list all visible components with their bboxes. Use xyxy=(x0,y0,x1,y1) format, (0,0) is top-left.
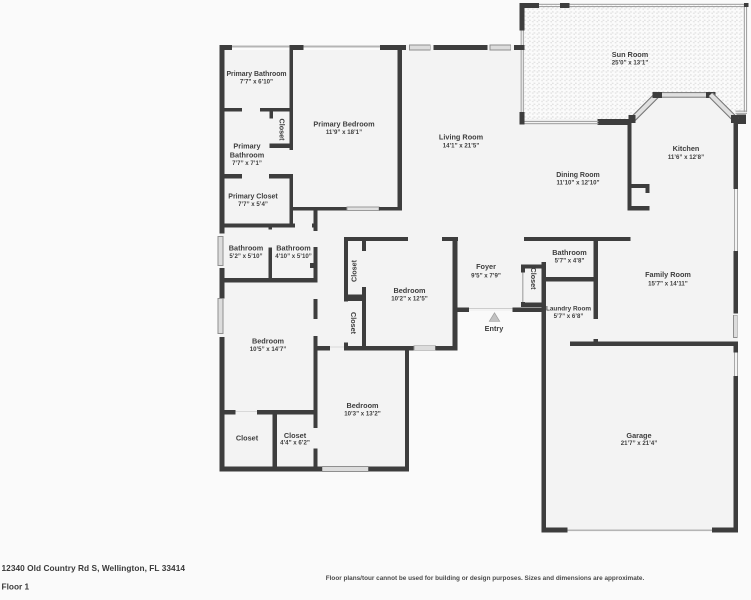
svg-text:9’5” x 7’9”: 9’5” x 7’9” xyxy=(471,273,501,280)
svg-text:Closet: Closet xyxy=(529,268,538,291)
svg-text:11’10” x 12’10”: 11’10” x 12’10” xyxy=(556,179,599,186)
svg-text:Floor plans/tour cannot be use: Floor plans/tour cannot be used for buil… xyxy=(326,575,645,582)
svg-text:21’7” x 21’4”: 21’7” x 21’4” xyxy=(621,440,658,447)
svg-text:Bedroom: Bedroom xyxy=(346,401,379,410)
svg-text:Primary Closet: Primary Closet xyxy=(228,194,278,201)
svg-text:10’3” x 13’2”: 10’3” x 13’2” xyxy=(344,410,381,417)
svg-text:Primary Bathroom: Primary Bathroom xyxy=(226,71,286,78)
svg-text:11’9” x 18’1”: 11’9” x 18’1” xyxy=(326,129,362,136)
svg-text:Bathroom: Bathroom xyxy=(276,244,311,253)
svg-text:10’2” x 12’5”: 10’2” x 12’5” xyxy=(391,295,428,302)
svg-text:5’7” x 4’8”: 5’7” x 4’8” xyxy=(555,257,585,264)
svg-text:Floor 1: Floor 1 xyxy=(2,582,30,592)
svg-text:Closet: Closet xyxy=(349,312,358,335)
svg-text:4’4” x 6’2”: 4’4” x 6’2” xyxy=(280,440,310,447)
svg-text:Primary: Primary xyxy=(233,141,261,150)
svg-text:Closet: Closet xyxy=(236,433,259,442)
svg-text:Primary Bedroom: Primary Bedroom xyxy=(313,120,375,129)
svg-text:7’7” x 5’4”: 7’7” x 5’4” xyxy=(238,201,268,208)
svg-text:10’5” x 14’7”: 10’5” x 14’7” xyxy=(250,346,287,353)
svg-text:Dining Room: Dining Room xyxy=(556,172,600,179)
svg-text:Laundry Room: Laundry Room xyxy=(546,306,591,313)
svg-text:Bathroom: Bathroom xyxy=(229,244,264,253)
svg-text:Sun Room: Sun Room xyxy=(612,50,649,59)
svg-text:Closet: Closet xyxy=(278,119,287,142)
svg-text:5’7” x 6’8”: 5’7” x 6’8” xyxy=(554,313,584,320)
svg-text:Family Room: Family Room xyxy=(645,270,691,279)
svg-text:Kitchen: Kitchen xyxy=(673,144,700,153)
svg-text:5’2” x 5’10”: 5’2” x 5’10” xyxy=(229,253,262,260)
svg-text:Garage: Garage xyxy=(626,431,651,440)
svg-text:Closet: Closet xyxy=(350,259,359,282)
svg-text:25’0” x 13’1”: 25’0” x 13’1” xyxy=(612,59,649,66)
svg-text:4’10” x 5’10”: 4’10” x 5’10” xyxy=(275,253,312,260)
svg-text:12340 Old Country Rd S, Wellin: 12340 Old Country Rd S, Wellington, FL 3… xyxy=(2,563,186,573)
svg-text:11’6” x 12’8”: 11’6” x 12’8” xyxy=(668,154,704,161)
svg-text:14’1” x 21’5”: 14’1” x 21’5” xyxy=(443,143,480,150)
svg-text:Entry: Entry xyxy=(485,324,505,333)
svg-text:Bedroom: Bedroom xyxy=(393,286,426,295)
svg-text:7’7” x 6’10”: 7’7” x 6’10” xyxy=(240,79,273,86)
svg-text:Bathroom: Bathroom xyxy=(552,248,587,257)
svg-text:Living Room: Living Room xyxy=(439,132,484,141)
svg-text:15’7” x 14’11”: 15’7” x 14’11” xyxy=(648,281,688,288)
svg-text:Bathroom: Bathroom xyxy=(230,151,265,160)
svg-text:7’7” x 7’1”: 7’7” x 7’1” xyxy=(232,160,262,167)
svg-text:Foyer: Foyer xyxy=(476,262,496,271)
svg-text:Bedroom: Bedroom xyxy=(252,337,285,346)
